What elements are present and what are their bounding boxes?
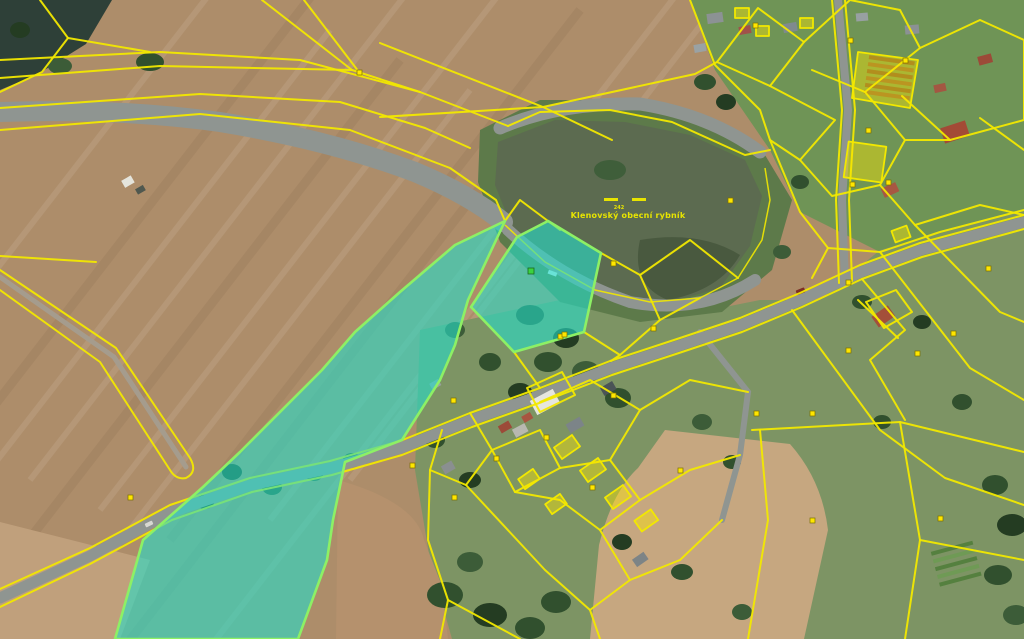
tree (671, 564, 693, 580)
parcel-marker (562, 332, 567, 337)
tree (791, 175, 809, 189)
parcel-marker (611, 393, 616, 398)
tree (732, 604, 752, 620)
parcel-marker (357, 70, 362, 75)
water-area-dash-icon (632, 198, 646, 201)
parcel-marker (728, 198, 733, 203)
parcel-marker (590, 485, 595, 490)
tree (534, 352, 562, 372)
pond-label: Klenovský obecní rybník (571, 211, 686, 220)
tree (457, 552, 483, 572)
parcel-marker (810, 411, 815, 416)
water-area-dash-icon (604, 198, 618, 201)
tree (984, 565, 1012, 585)
building-parcel-fill (800, 18, 813, 28)
building-parcel-fill (735, 8, 749, 18)
tree (692, 414, 712, 430)
tree (913, 315, 931, 329)
tree (479, 353, 501, 371)
parcel-marker (886, 180, 891, 185)
parcel-marker (986, 266, 991, 271)
parcel-marker (951, 331, 956, 336)
tree (541, 591, 571, 613)
parcel-marker (938, 516, 943, 521)
parcel-marker (846, 348, 851, 353)
parcel-marker (866, 128, 871, 133)
tree (10, 22, 30, 38)
tree (612, 534, 632, 550)
tree (515, 617, 545, 639)
parcel-marker (451, 398, 456, 403)
parcel-marker (754, 411, 759, 416)
parcel-marker (903, 58, 908, 63)
parcel-marker (810, 518, 815, 523)
highlighted-parcel-marker (528, 268, 534, 274)
parcel-marker (753, 23, 758, 28)
parcel-marker (611, 261, 616, 266)
parcel-marker (494, 456, 499, 461)
parcel-marker (544, 435, 549, 440)
building-parcel-fill (844, 142, 887, 183)
parcel-marker (651, 326, 656, 331)
parcel-marker (915, 351, 920, 356)
parcel-marker (678, 468, 683, 473)
building (856, 12, 869, 21)
parcel-marker (128, 495, 133, 500)
map-viewport[interactable]: 242 Klenovský obecní rybník (0, 0, 1024, 639)
tree (952, 394, 972, 410)
tree (694, 74, 716, 90)
tree (716, 94, 736, 110)
tree (594, 160, 626, 180)
parcel-marker (848, 38, 853, 43)
tree (773, 245, 791, 259)
parcel-marker (846, 280, 851, 285)
parcel-marker (850, 182, 855, 187)
parcel-marker (410, 463, 415, 468)
cadastral-aerial-map: 242 Klenovský obecní rybník (0, 0, 1024, 639)
parcel-marker (452, 495, 457, 500)
